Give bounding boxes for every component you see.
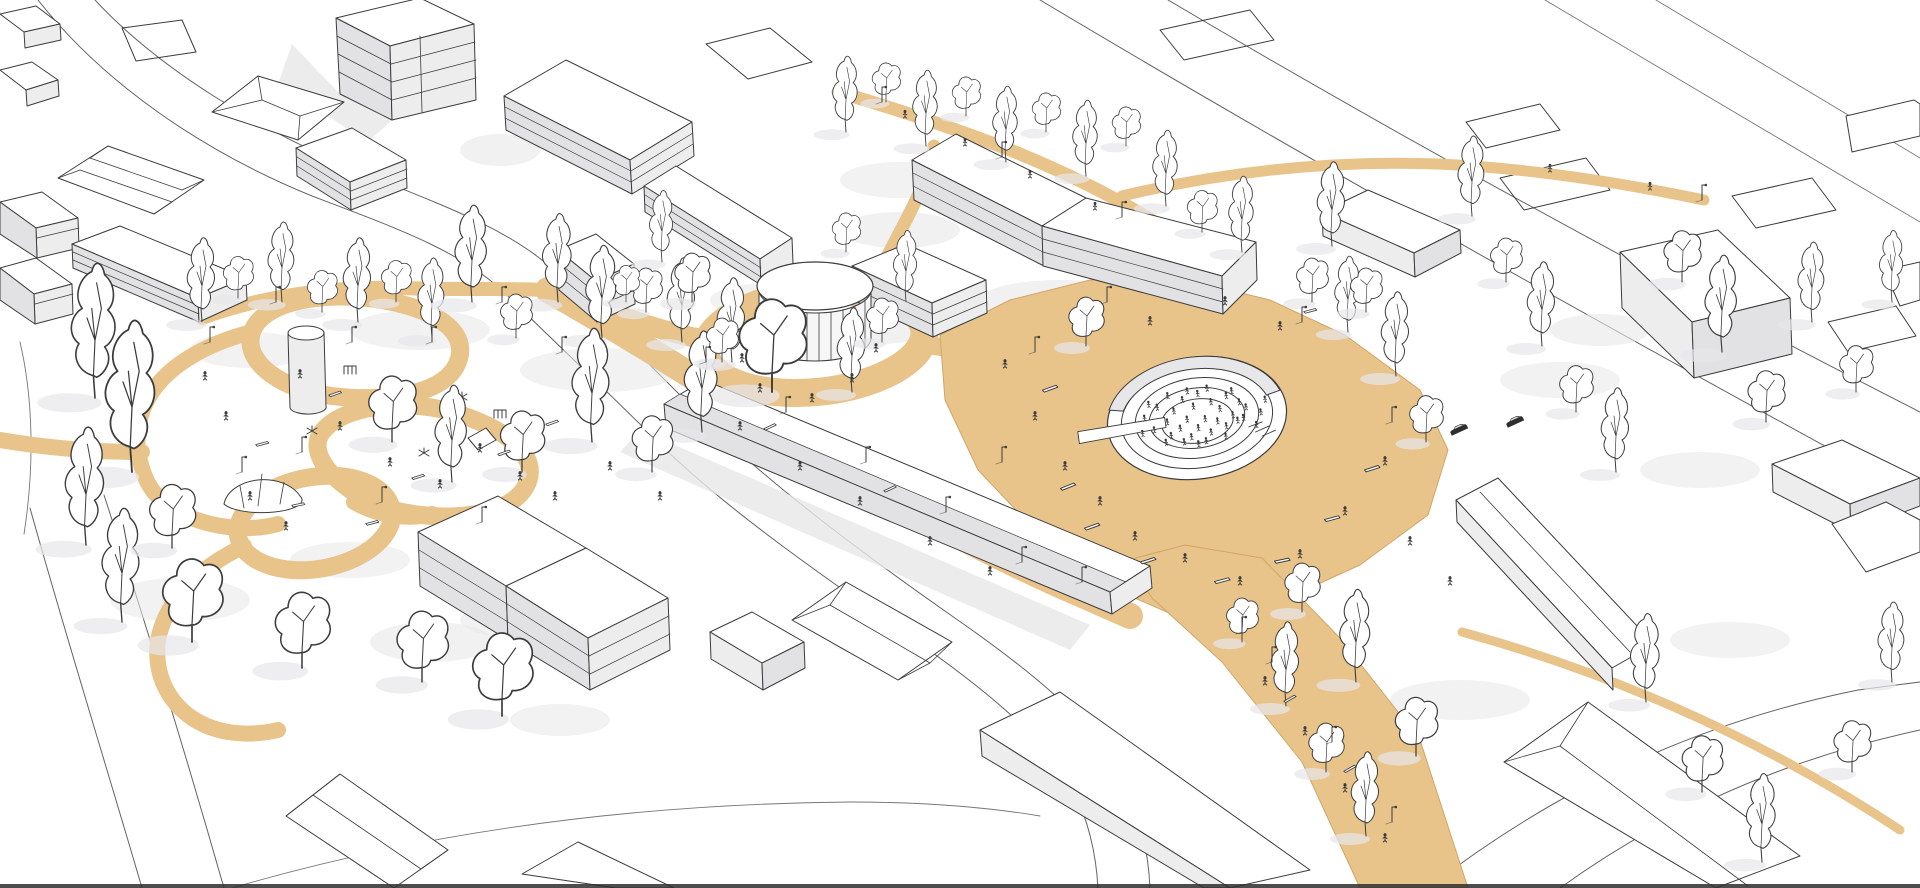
slab-north [296,128,407,210]
masterplan-rendering-svg [0,0,1920,888]
l-building [418,496,670,690]
towers-north [336,0,476,120]
masterplan-figure [0,0,1920,888]
bottom-border [0,884,1920,888]
